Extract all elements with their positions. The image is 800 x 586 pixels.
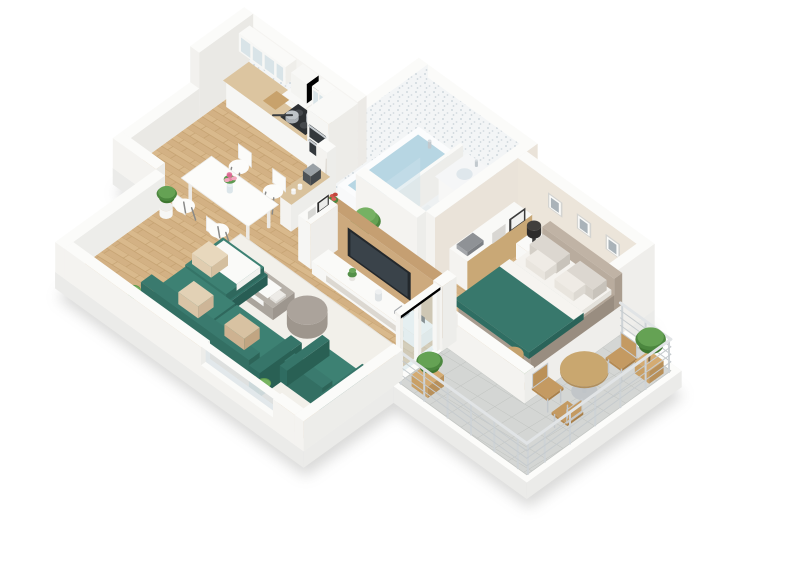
floorplan-render-canvas: [0, 0, 800, 586]
apartment-3d-floorplan: [0, 0, 800, 586]
pouf: [287, 295, 328, 338]
